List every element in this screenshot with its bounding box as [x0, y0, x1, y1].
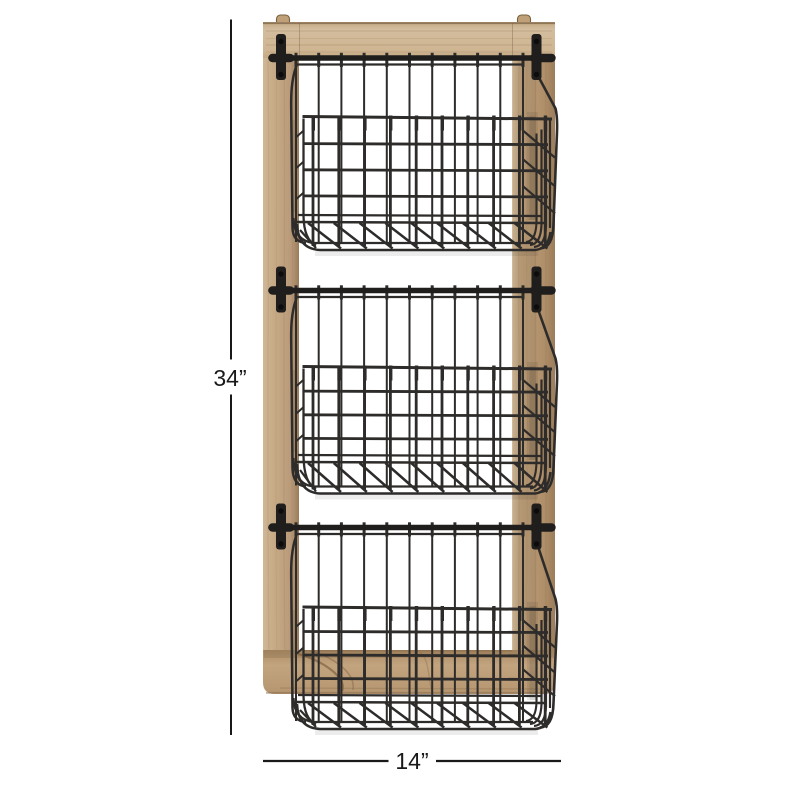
- svg-text:14”: 14”: [395, 748, 428, 774]
- svg-text:34”: 34”: [213, 365, 246, 391]
